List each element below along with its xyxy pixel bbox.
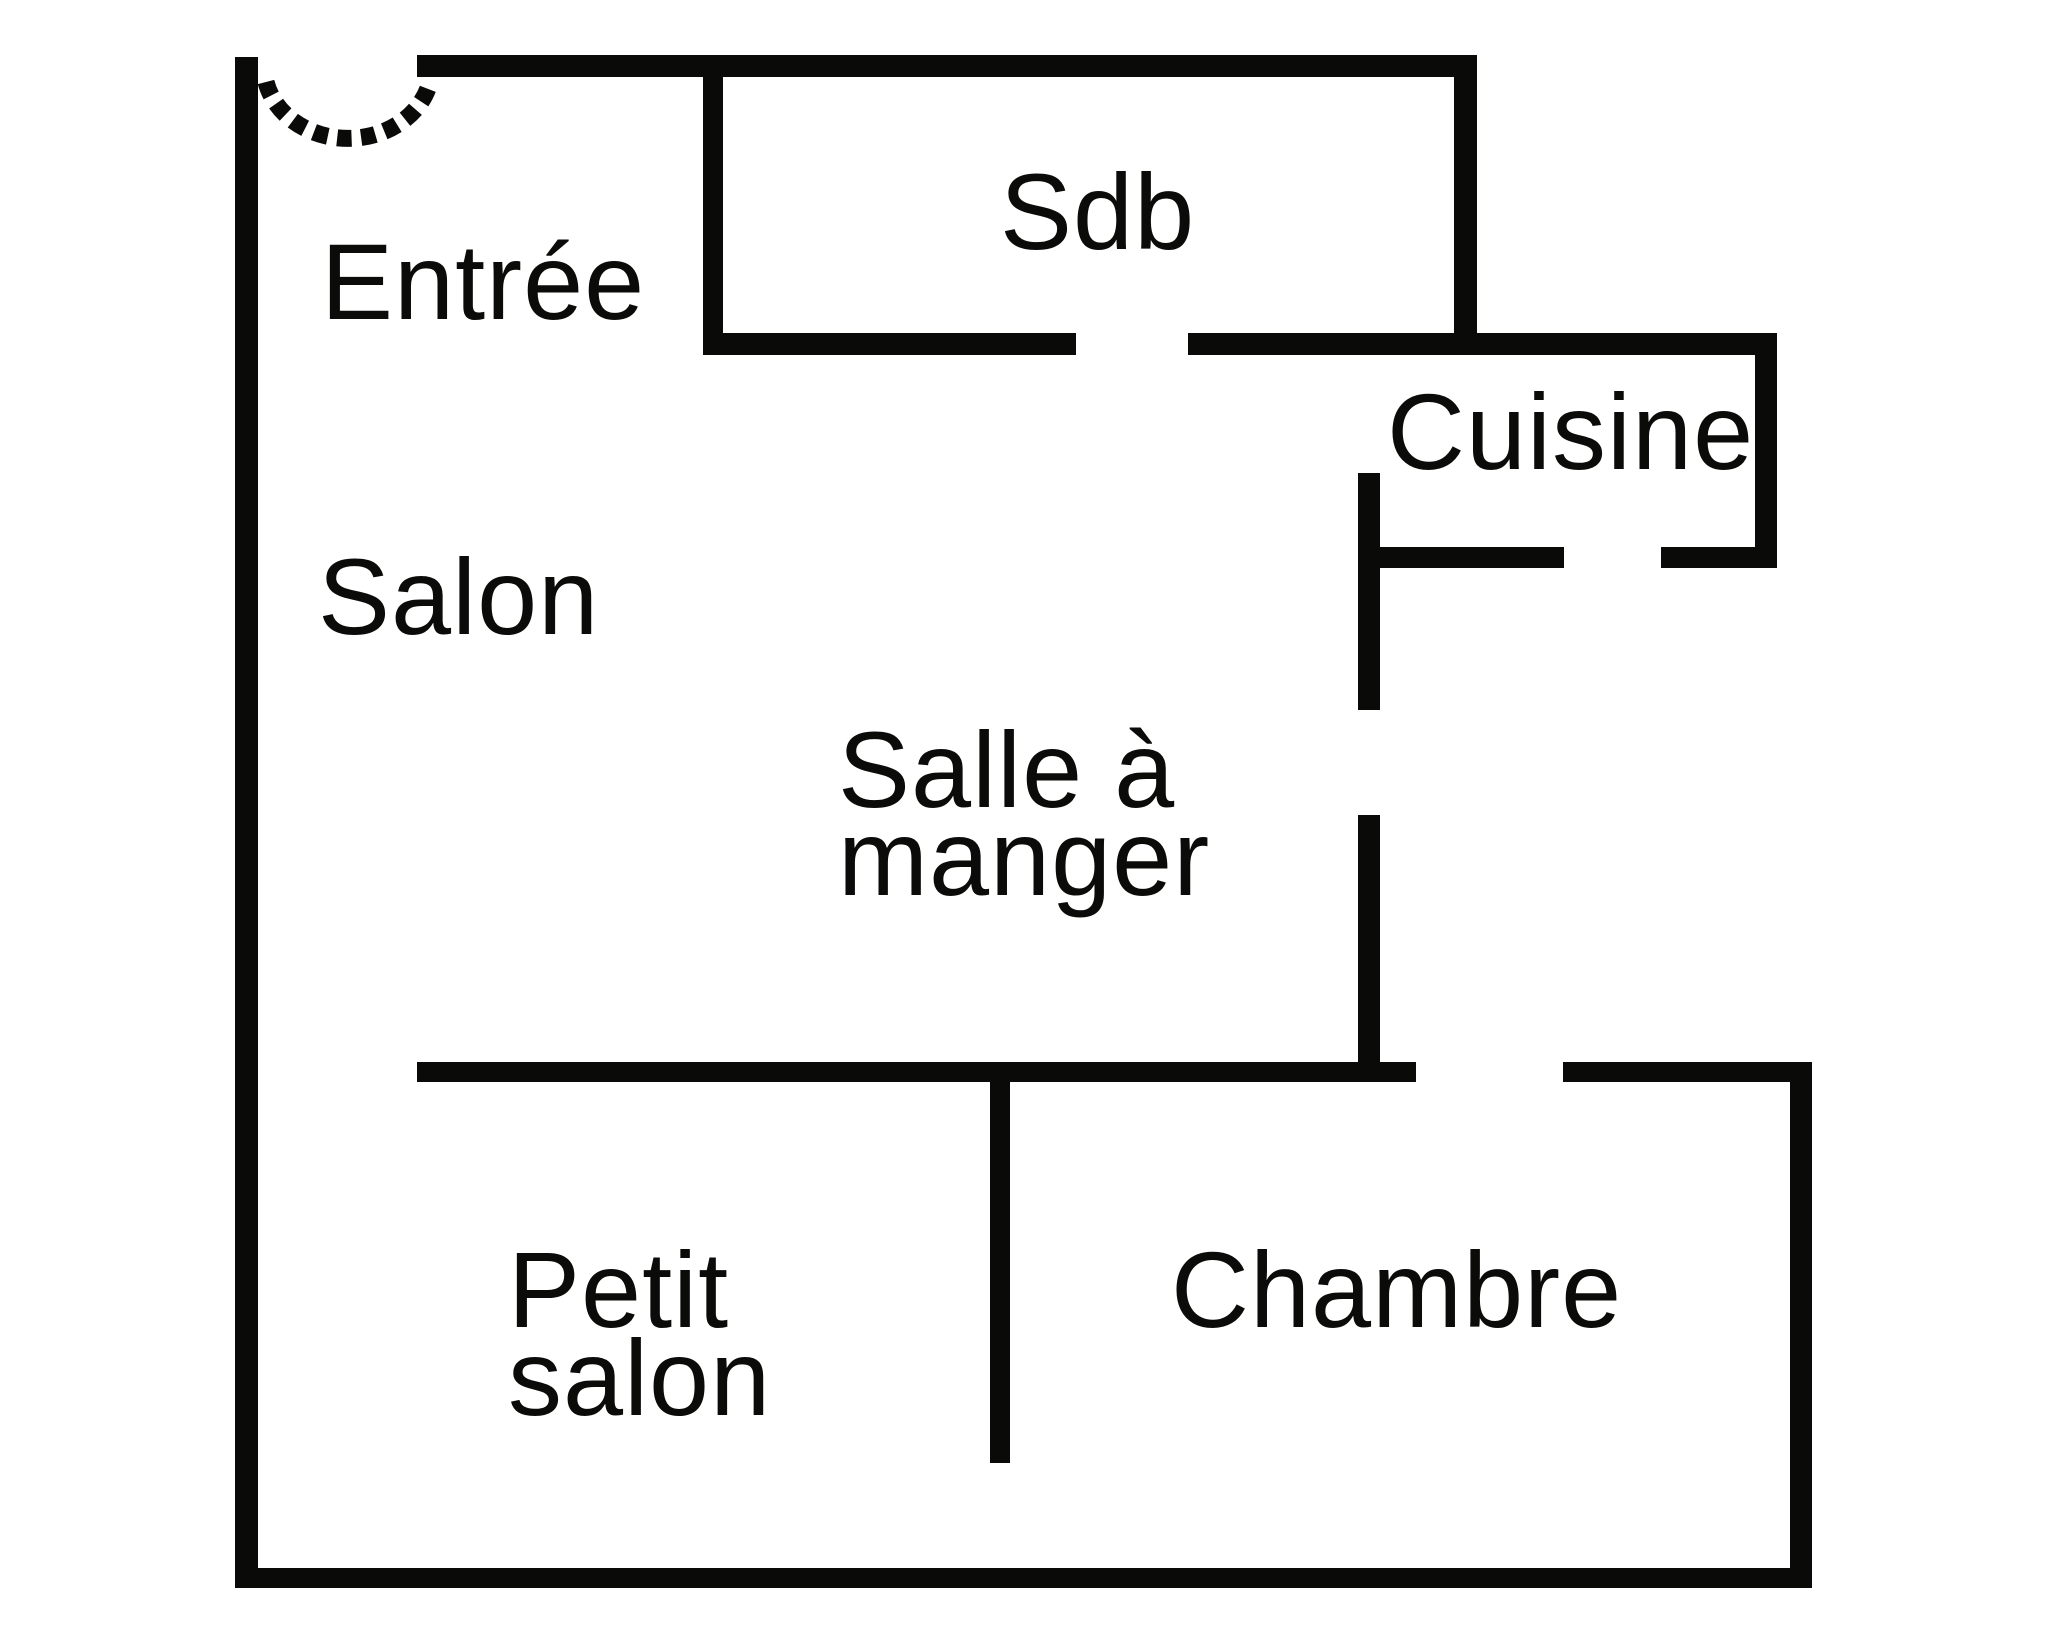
floor-plan: Entrée Sdb Cuisine Salon Salle à manger … xyxy=(0,0,2048,1645)
room-label-petit-salon: Petit salon xyxy=(508,1246,771,1422)
wall-dining-right-upper-segment xyxy=(1358,473,1380,710)
room-label-sdb: Sdb xyxy=(1000,168,1195,256)
wall-bottom xyxy=(235,1568,1812,1588)
wall-dining-right-lower-segment xyxy=(1358,815,1380,1072)
room-label-entree: Entrée xyxy=(321,238,645,326)
wall-sdb-bottom-right-segment-cuisine-top xyxy=(1188,333,1777,355)
wall-right-chambre xyxy=(1790,1062,1812,1588)
wall-left xyxy=(235,57,258,1588)
wall-sdb-bottom-left-segment xyxy=(703,333,1076,355)
room-label-chambre: Chambre xyxy=(1171,1246,1622,1334)
wall-mid-right-segment xyxy=(1563,1062,1811,1082)
wall-petit-salon-chambre-divider xyxy=(990,1082,1010,1463)
room-label-salon: Salon xyxy=(318,553,599,641)
wall-mid-left-segment xyxy=(417,1062,1416,1082)
room-label-salle-a-manger: Salle à manger xyxy=(838,726,1210,902)
wall-sdb-left xyxy=(703,77,723,355)
wall-cuisine-bottom-left-segment xyxy=(1380,547,1564,568)
wall-top xyxy=(417,55,1477,77)
wall-cuisine-bottom-right-segment xyxy=(1661,547,1777,568)
wall-sdb-right xyxy=(1454,55,1477,355)
room-label-cuisine: Cuisine xyxy=(1387,388,1754,476)
door-swing-arc-icon xyxy=(0,0,520,220)
wall-cuisine-right xyxy=(1755,345,1777,568)
